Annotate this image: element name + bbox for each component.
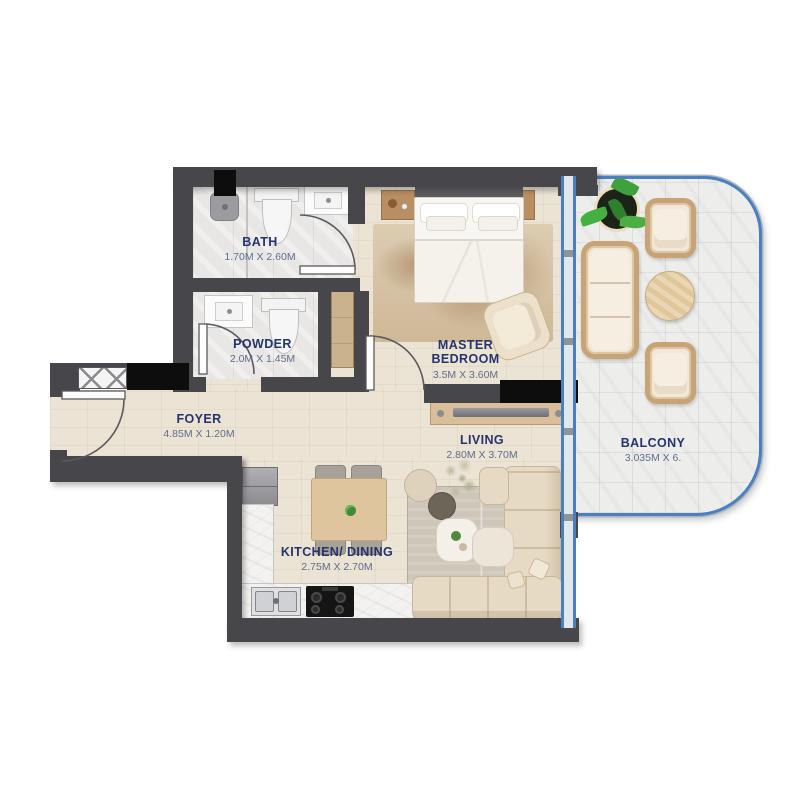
window-wall bbox=[561, 176, 576, 628]
balcony-armchair-top bbox=[645, 198, 696, 258]
room-name-bath: BATH bbox=[190, 235, 330, 249]
bedroom-dresser bbox=[381, 190, 415, 220]
wall-bath-left bbox=[173, 167, 193, 392]
wall-powder-bottom-jamb bbox=[193, 377, 206, 392]
wardrobe bbox=[331, 291, 354, 368]
faucet bbox=[273, 598, 279, 604]
armchair-cushion bbox=[654, 353, 687, 394]
wall-bedroom-bottom bbox=[424, 384, 502, 403]
room-dims-bath: 1.70M X 2.60M bbox=[190, 251, 330, 263]
decor-item bbox=[459, 543, 467, 551]
bed-blanket bbox=[415, 239, 523, 302]
wall-powder-bottom bbox=[261, 377, 369, 392]
balcony-armchair-bottom bbox=[645, 342, 696, 404]
room-name-foyer: FOYER bbox=[129, 412, 269, 426]
window-mullion bbox=[564, 250, 573, 257]
kitchen-sink bbox=[251, 587, 301, 616]
wall-powder-right bbox=[318, 291, 331, 379]
wall-kitchen-left bbox=[227, 456, 242, 632]
bed bbox=[414, 197, 524, 303]
shower-glass bbox=[246, 187, 248, 279]
cooktop bbox=[306, 586, 354, 617]
living-sofa-chaise bbox=[479, 467, 509, 505]
room-name-kitchen-dining: KITCHEN/ DINING bbox=[267, 545, 407, 559]
room-label-bath: BATH 1.70M X 2.60M bbox=[190, 235, 330, 263]
tv-console bbox=[430, 402, 568, 425]
room-dims-kitchen-dining: 2.75M X 2.70M bbox=[267, 561, 407, 573]
fridge bbox=[242, 467, 278, 506]
room-dims-balcony: 3.035M X 6. bbox=[585, 452, 721, 464]
room-label-kitchen-dining: KITCHEN/ DINING 2.75M X 2.70M bbox=[267, 545, 407, 573]
sink-basin bbox=[255, 591, 274, 612]
dining-table bbox=[311, 478, 387, 541]
armchair-cushion bbox=[654, 209, 687, 248]
room-dims-powder: 2.0M X 1.45M bbox=[195, 353, 330, 365]
shower-drain bbox=[222, 204, 228, 210]
shower-fixture bbox=[214, 170, 236, 196]
living-sofa-bottom bbox=[412, 576, 562, 620]
room-label-living: LIVING 2.80M X 3.70M bbox=[412, 433, 552, 461]
table-plant bbox=[345, 505, 356, 516]
burner bbox=[335, 592, 346, 603]
powder-vanity bbox=[204, 295, 253, 328]
service-shaft bbox=[127, 363, 189, 390]
wall-bath-right-jamb bbox=[348, 183, 365, 224]
pillow bbox=[478, 216, 518, 231]
bath-vanity bbox=[304, 186, 351, 215]
balcony-round-table bbox=[645, 271, 695, 321]
room-name-balcony: BALCONY bbox=[585, 436, 721, 450]
wall-top bbox=[173, 167, 597, 187]
burner bbox=[335, 605, 344, 614]
shower-head bbox=[210, 192, 239, 221]
burner bbox=[311, 605, 320, 614]
foyer-closet bbox=[78, 367, 127, 389]
room-label-powder: POWDER 2.0M X 1.45M bbox=[195, 337, 330, 365]
room-dims-foyer: 4.85M X 1.20M bbox=[129, 428, 269, 440]
burner bbox=[311, 592, 322, 603]
window-mullion bbox=[564, 338, 573, 345]
room-label-balcony: BALCONY 3.035M X 6. bbox=[585, 436, 721, 464]
sink-basin bbox=[278, 591, 297, 612]
knob-strip bbox=[322, 587, 338, 591]
room-label-master-bedroom: MASTER BEDROOM 3.5M X 3.60M bbox=[408, 338, 523, 381]
faucet bbox=[227, 309, 232, 314]
room-name-master-bedroom: MASTER BEDROOM bbox=[408, 338, 523, 367]
window-mullion bbox=[564, 428, 573, 435]
room-dims-living: 2.80M X 3.70M bbox=[412, 449, 552, 461]
sofa-cushions bbox=[590, 250, 630, 350]
faucet bbox=[326, 198, 331, 203]
window-mullion bbox=[564, 514, 573, 521]
decor-item bbox=[401, 203, 408, 210]
floor-plan: BATH 1.70M X 2.60M POWDER 2.0M X 1.45M M… bbox=[0, 0, 800, 800]
coffee-table-2 bbox=[472, 527, 514, 567]
decor-item bbox=[451, 531, 461, 541]
balcony-sofa bbox=[581, 241, 639, 359]
wall-foyer-bottom bbox=[50, 456, 242, 482]
room-name-powder: POWDER bbox=[195, 337, 330, 351]
wall-bath-powder-divider bbox=[193, 278, 360, 292]
speaker bbox=[437, 410, 444, 417]
wall-foyer-left-upper bbox=[50, 363, 67, 397]
pillow bbox=[426, 216, 466, 231]
tv-screen bbox=[453, 408, 549, 417]
fridge-divider bbox=[243, 486, 277, 487]
room-label-foyer: FOYER 4.85M X 1.20M bbox=[129, 412, 269, 440]
living-pouf bbox=[428, 492, 456, 520]
decor-item bbox=[388, 199, 397, 208]
room-name-living: LIVING bbox=[412, 433, 552, 447]
room-dims-master-bedroom: 3.5M X 3.60M bbox=[408, 369, 523, 381]
wall-bottom bbox=[227, 618, 579, 642]
